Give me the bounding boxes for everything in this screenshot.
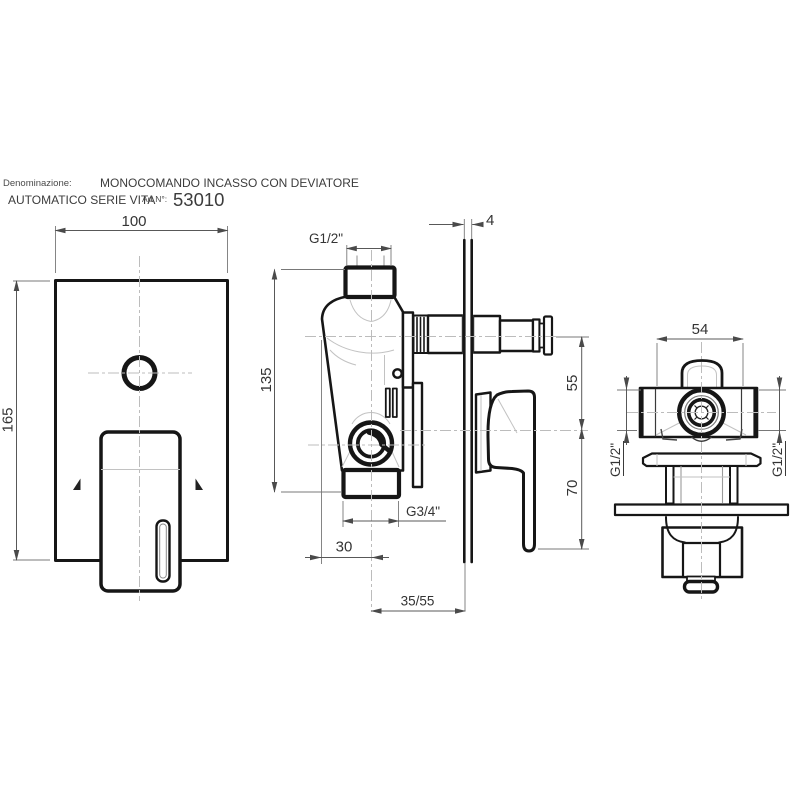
dim-body-width: 54 [692, 321, 709, 338]
dim-plate-width: 100 [121, 213, 146, 230]
lever-slot [157, 521, 170, 582]
fixing-screw [393, 369, 401, 377]
article-number-label: Art.N°: [142, 194, 167, 204]
title-block: Denominazione: MONOCOMANDO INCASSO CON D… [3, 176, 359, 210]
dim-body-height: 135 [258, 367, 275, 392]
top-inlet-stub [346, 268, 395, 298]
dim-handle-drop: 70 [564, 480, 581, 497]
dim-plate-height: 165 [0, 407, 17, 432]
dim-right-inlet-thread: G1/2" [770, 443, 785, 477]
dim-left-inlet-thread: G1/2" [608, 443, 623, 477]
front-view: 100 165 [0, 213, 228, 601]
mixer-valve-technical-drawing: Denominazione: MONOCOMANDO INCASSO CON D… [0, 0, 800, 800]
dim-outlet-thread: G3/4" [406, 504, 440, 519]
lever-handle-side [488, 391, 535, 551]
upper-mounting-flange [403, 313, 413, 388]
dim-outlet-horizontal-offset: 30 [336, 539, 353, 556]
lower-mounting-flange [413, 383, 422, 487]
dim-wall-thickness: 4 [486, 212, 494, 229]
rear-view: 54 G1/2" G1/2" [608, 321, 788, 601]
outlet-pipe-reduced [500, 321, 533, 352]
outlet-pipe [428, 316, 463, 354]
dim-installation-depth: 35/55 [401, 594, 435, 609]
product-name-line2: AUTOMATICO SERIE VITA [8, 193, 155, 207]
dim-outlet-offset: 55 [564, 375, 581, 392]
outlet-end-fitting [544, 317, 552, 355]
product-name-line1: MONOCOMANDO INCASSO CON DEVIATORE [100, 176, 359, 190]
article-number-value: 53010 [173, 189, 224, 210]
technical-drawing-sheet: Denominazione: MONOCOMANDO INCASSO CON D… [0, 0, 800, 800]
side-section-view: G1/2" 4 135 55 70 G3/4" 30 [258, 212, 589, 612]
dim-inlet-thread: G1/2" [309, 231, 343, 246]
denominazione-label: Denominazione: [3, 178, 72, 189]
